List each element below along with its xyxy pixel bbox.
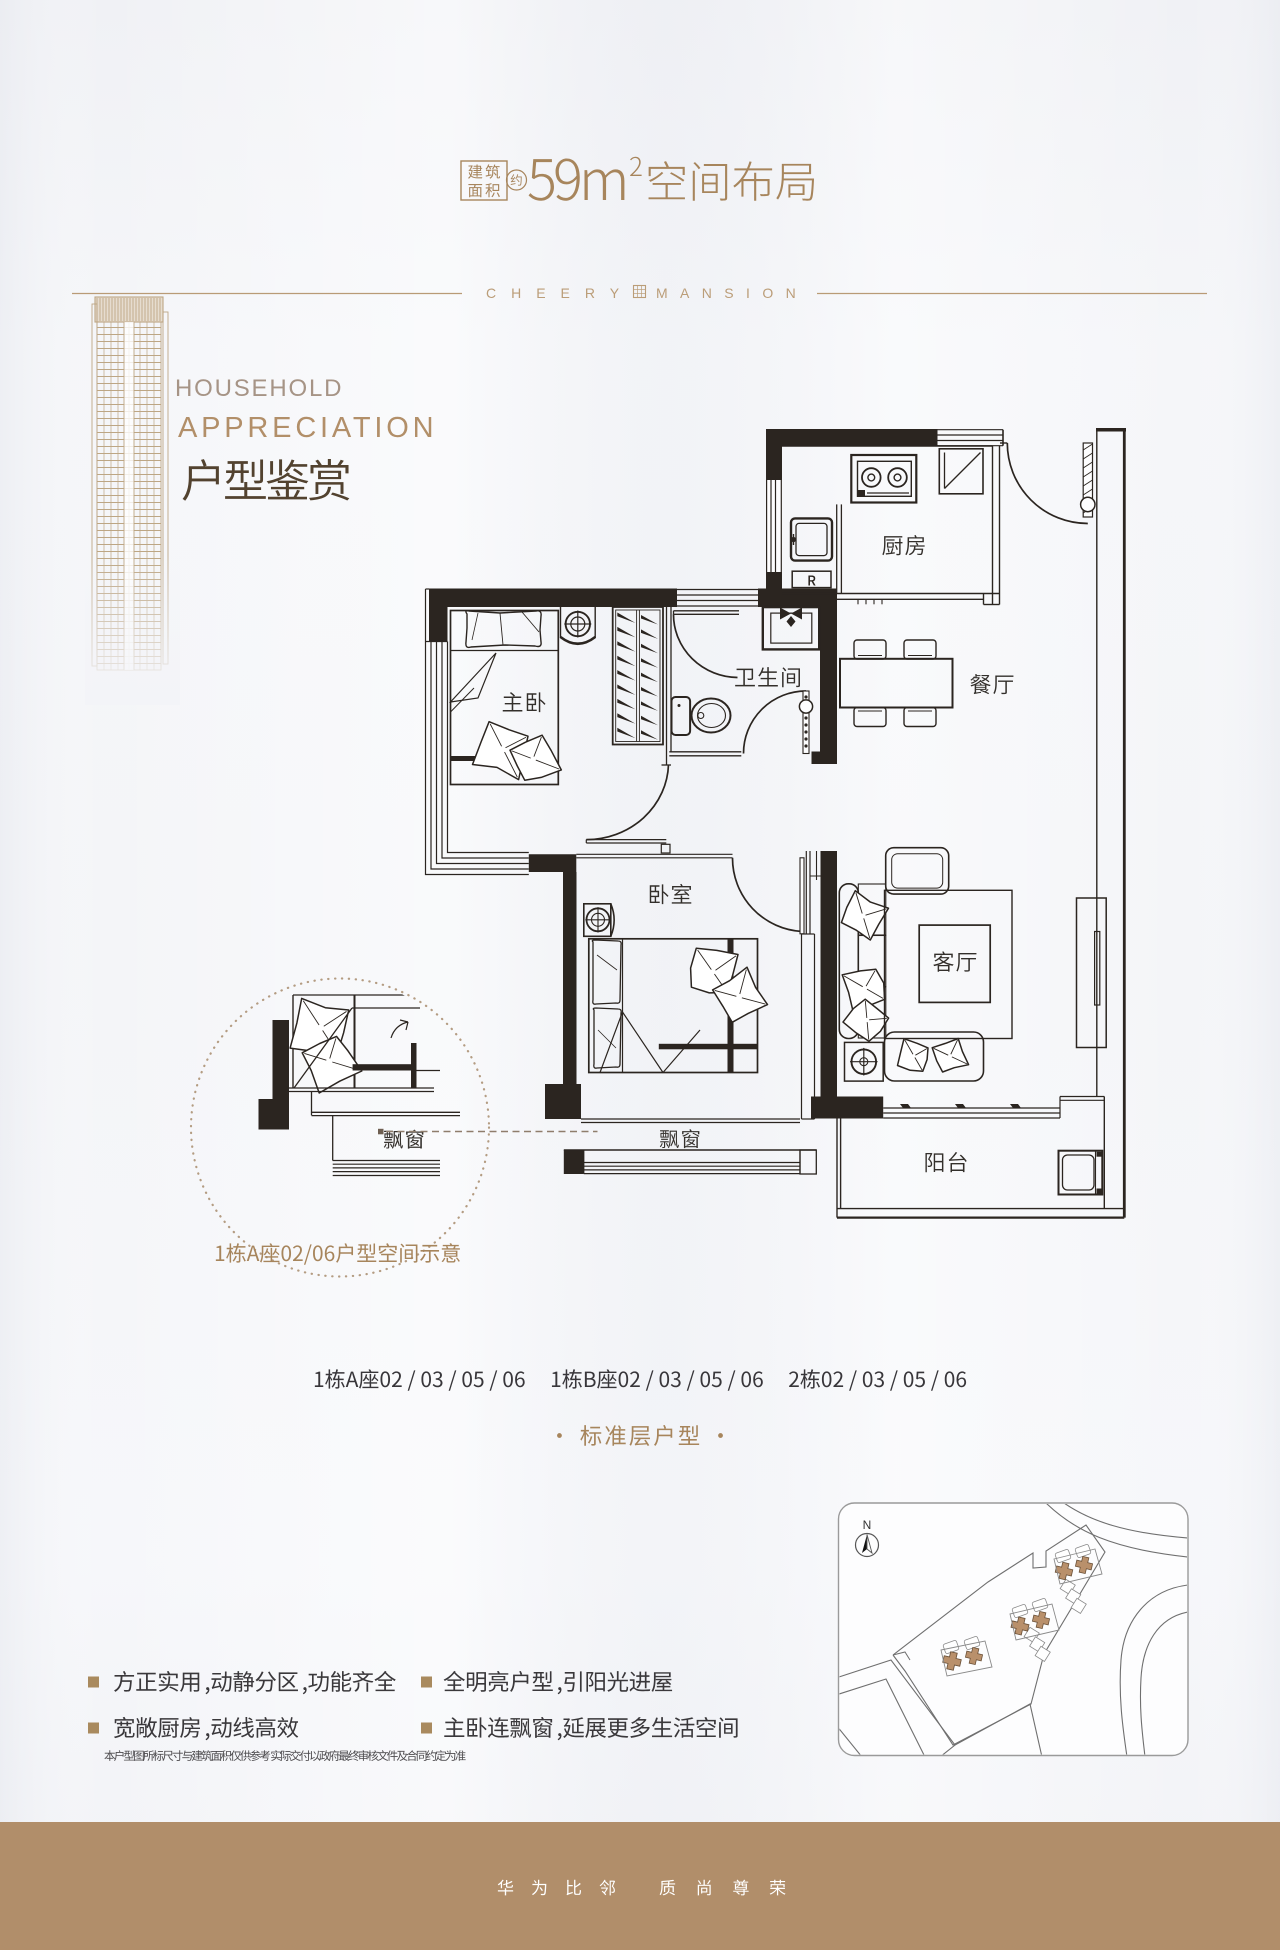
svg-text:N: N [863, 1518, 872, 1532]
svg-text:HOUSEHOLD: HOUSEHOLD [175, 375, 343, 402]
svg-text:APPRECIATION: APPRECIATION [178, 412, 437, 444]
svg-text:CHEERY: CHEERY [486, 285, 634, 301]
svg-text:MANSION: MANSION [656, 285, 808, 301]
